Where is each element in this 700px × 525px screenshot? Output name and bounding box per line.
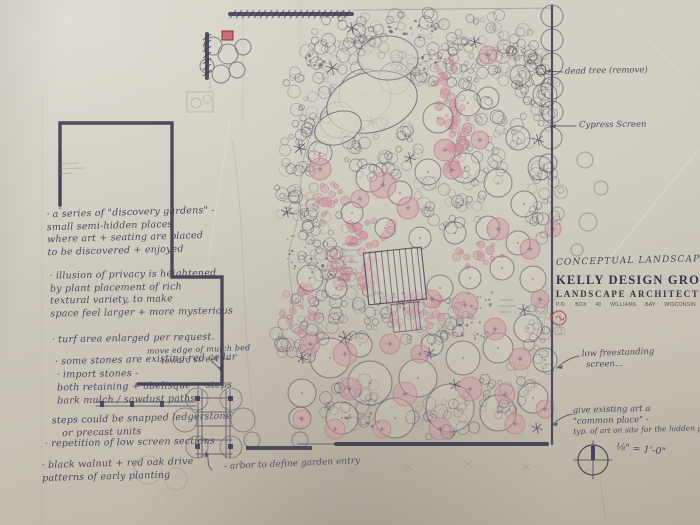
note-line: turf area enlarged per request. bbox=[58, 332, 215, 346]
note-privacy-illusion: ·illusion of privacy is heightened by pl… bbox=[50, 267, 234, 321]
note-line: repetition of low screen sections bbox=[51, 436, 215, 450]
existing-trees-right bbox=[571, 152, 608, 256]
firm-subtitle: LANDSCAPE ARCHITECTURE bbox=[556, 289, 700, 299]
pink-stone-path bbox=[280, 284, 321, 335]
firm-address: P.O. BOX 40 WILLIAMS BAY WISCONSIN 262 bbox=[556, 302, 700, 308]
firm-name-text: KELLY DESIGN GROUP bbox=[556, 273, 700, 287]
note-line: illusion of privacy is heightened bbox=[56, 268, 217, 282]
annotation-existing-art: give existing art a "common place" - typ… bbox=[573, 402, 700, 437]
note-discovery-gardens: ·a series of "discovery gardens" - small… bbox=[46, 205, 216, 260]
annotation-dead-tree: dead tree (remove) bbox=[565, 65, 648, 77]
title-block: CONCEPTUAL LANDSCAPE PLAN KELLY DESIGN G… bbox=[556, 256, 700, 308]
red-square-marker bbox=[222, 31, 233, 40]
note-walnut-oak: ·black walnut + red oak drive patterns o… bbox=[42, 456, 194, 485]
pencil-tick-marks bbox=[348, 461, 589, 475]
bullet: · bbox=[52, 334, 55, 345]
north-arrow-symbol bbox=[574, 441, 612, 479]
bullet: · bbox=[45, 438, 48, 449]
boardwalk-steps bbox=[363, 247, 429, 335]
firm-name: KELLY DESIGN GROUPLLC bbox=[556, 273, 700, 288]
note-mulch-bed: move edge of mulch bed toward street — bbox=[147, 343, 251, 366]
bullet: · bbox=[55, 356, 59, 367]
groundcover-stipple bbox=[305, 54, 332, 68]
bullet: · bbox=[46, 209, 50, 220]
plan-top-edge bbox=[352, 8, 552, 10]
photo-of-landscape-plan: ·a series of "discovery gardens" - small… bbox=[0, 0, 700, 525]
boulder-shape bbox=[358, 36, 418, 80]
bullet: · bbox=[42, 460, 46, 471]
note-line: black walnut + red oak drive bbox=[48, 456, 194, 471]
entry-screen-bar bbox=[246, 446, 312, 450]
annotation-freestanding-screen: low freestanding screen... bbox=[582, 347, 655, 371]
annotation-cypress-screen: Cypress Screen bbox=[579, 120, 647, 131]
note-line: import stones - bbox=[63, 368, 139, 380]
bullet: · bbox=[57, 369, 60, 380]
bullet: · bbox=[50, 271, 53, 282]
plan-title: CONCEPTUAL LANDSCAPE PLAN bbox=[556, 254, 700, 268]
note-import-stones: ·import stones - both retaining + obelis… bbox=[57, 366, 233, 408]
